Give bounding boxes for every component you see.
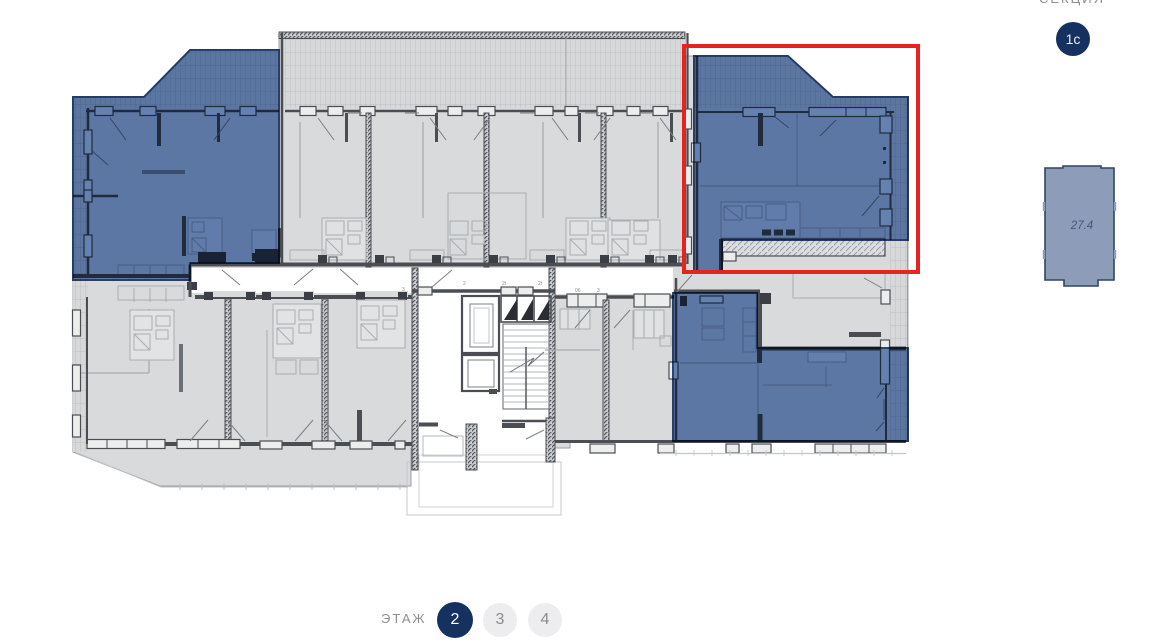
- svg-text:3: 3: [597, 288, 600, 294]
- svg-text:3: 3: [402, 287, 405, 293]
- svg-text:2t: 2t: [538, 281, 543, 287]
- svg-text:2: 2: [463, 281, 466, 287]
- svg-text:2t: 2t: [502, 281, 507, 287]
- svg-text:27.4: 27.4: [1070, 220, 1093, 232]
- svg-text:06: 06: [575, 288, 581, 294]
